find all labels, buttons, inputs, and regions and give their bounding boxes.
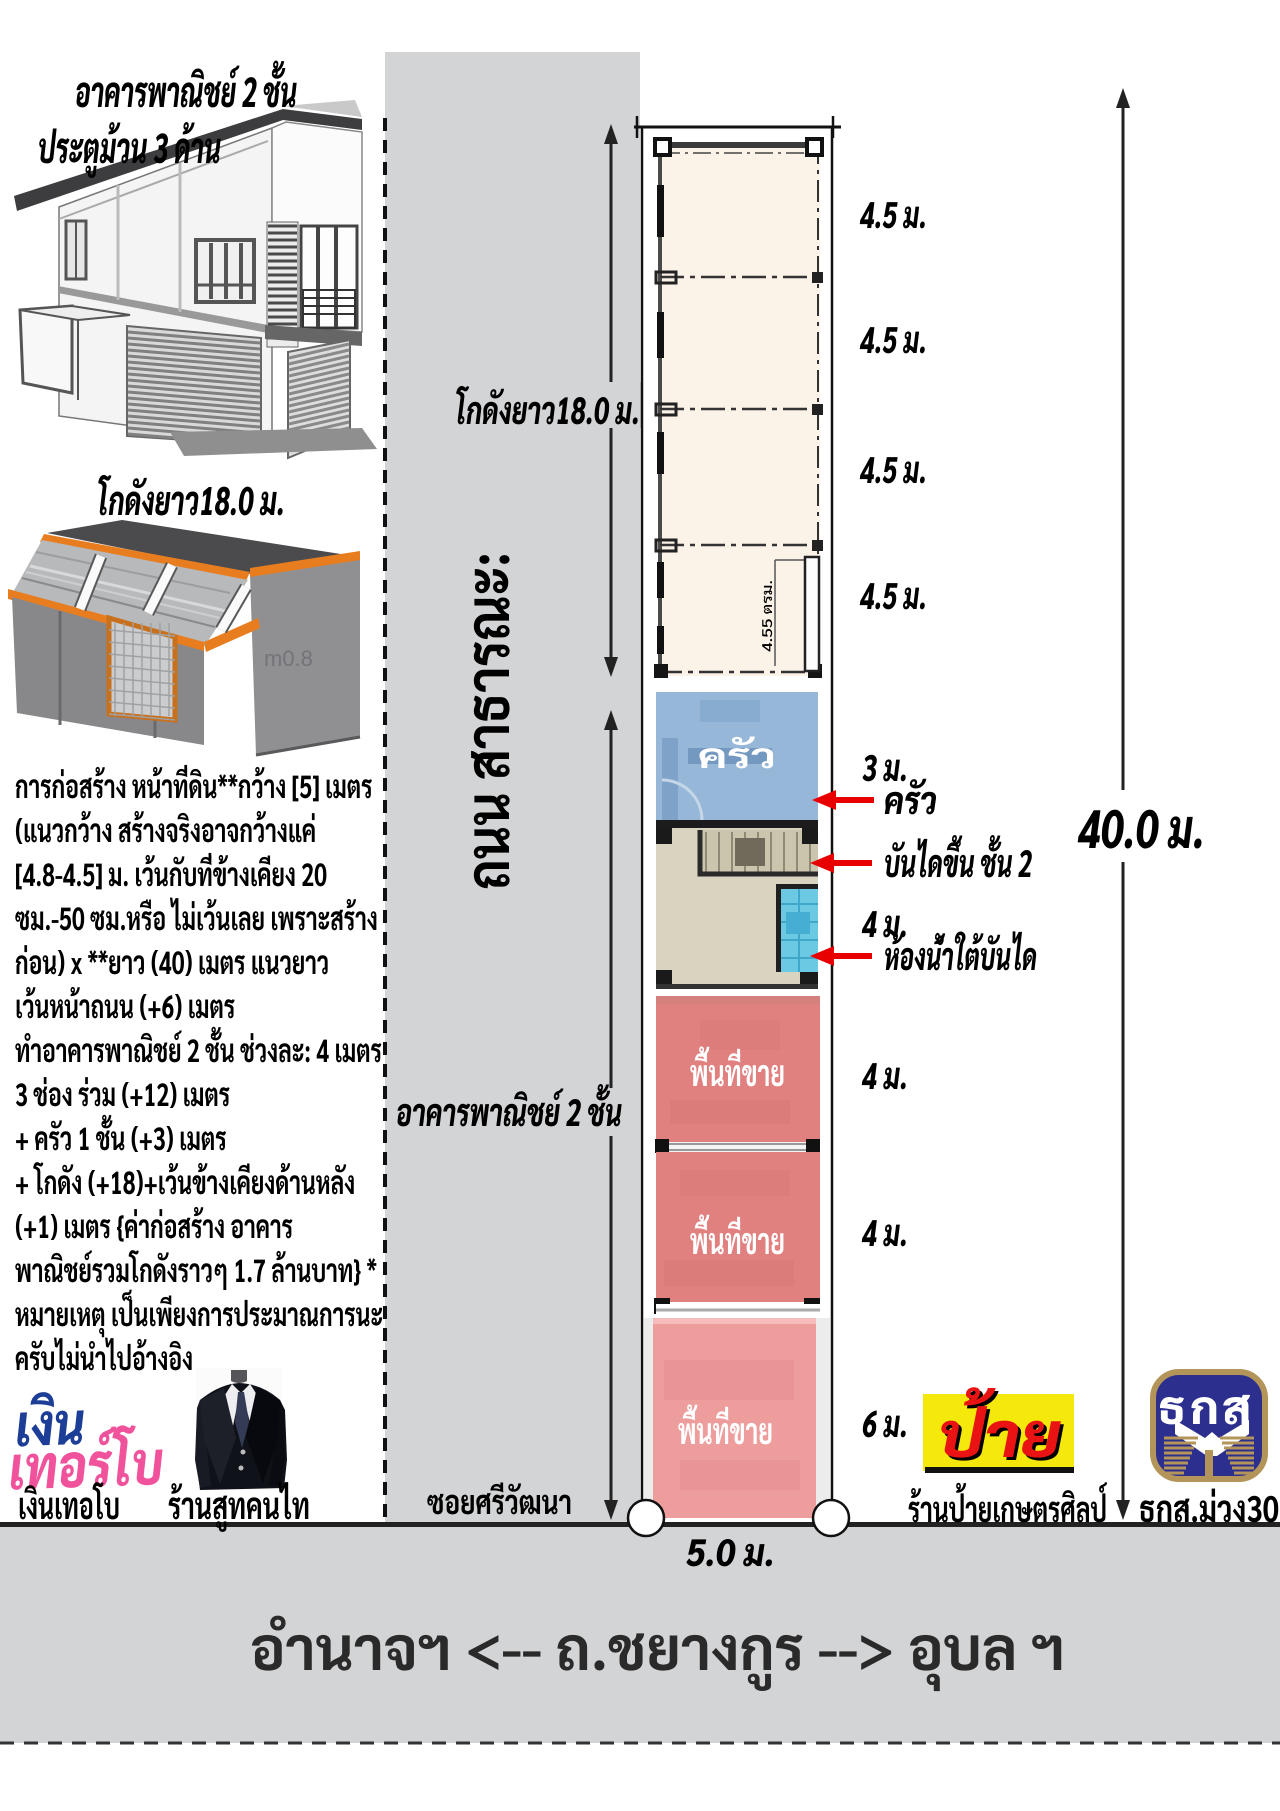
svg-text:m0.8: m0.8 xyxy=(264,646,313,671)
